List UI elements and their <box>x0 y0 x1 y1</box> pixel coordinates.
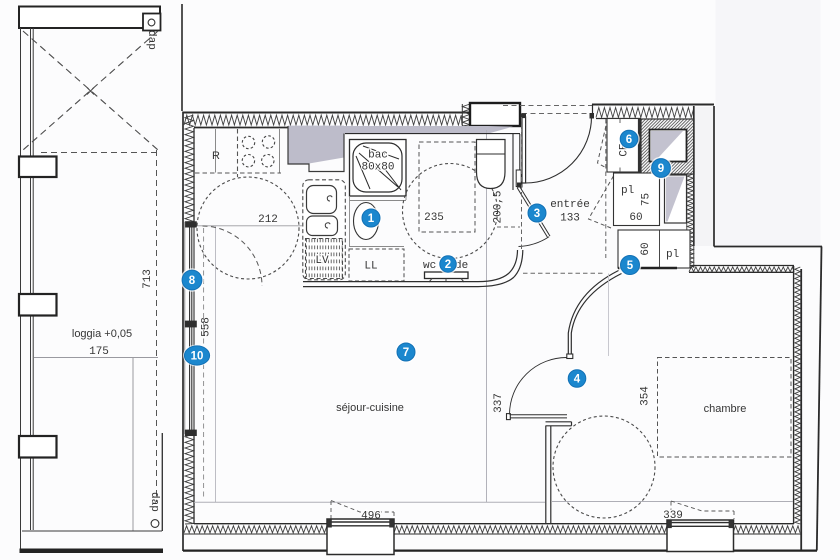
svg-text:1: 1 <box>368 213 375 225</box>
svg-text:séjour-cuisine: séjour-cuisine <box>336 402 404 414</box>
svg-text:pl: pl <box>666 249 679 261</box>
svg-text:2: 2 <box>445 259 451 271</box>
svg-text:212: 212 <box>258 214 278 226</box>
svg-text:10: 10 <box>191 351 204 363</box>
svg-text:9: 9 <box>658 163 664 175</box>
svg-text:LL: LL <box>364 261 377 273</box>
svg-text:133: 133 <box>560 213 580 225</box>
svg-text:wc: wc <box>423 260 436 272</box>
svg-text:LV: LV <box>315 255 329 267</box>
svg-text:337: 337 <box>493 393 505 413</box>
svg-text:200,5: 200,5 <box>493 190 505 223</box>
svg-text:175: 175 <box>89 346 109 358</box>
svg-text:pl: pl <box>621 185 634 197</box>
svg-text:7: 7 <box>403 347 409 359</box>
svg-text:235: 235 <box>424 212 444 224</box>
svg-text:4: 4 <box>574 374 581 386</box>
svg-text:6: 6 <box>626 134 632 146</box>
svg-text:R: R <box>212 150 220 162</box>
svg-text:bac: bac <box>368 150 388 162</box>
svg-text:713: 713 <box>142 269 154 289</box>
svg-text:60: 60 <box>629 212 642 224</box>
svg-text:80x80: 80x80 <box>361 162 394 174</box>
svg-text:5: 5 <box>627 260 634 272</box>
svg-text:60: 60 <box>640 242 652 255</box>
svg-text:75: 75 <box>641 193 653 206</box>
svg-text:558: 558 <box>201 317 213 337</box>
svg-text:dap: dap <box>148 492 160 512</box>
svg-text:loggia +0,05: loggia +0,05 <box>72 328 132 340</box>
svg-text:3: 3 <box>534 208 540 220</box>
svg-text:354: 354 <box>640 386 652 406</box>
svg-text:chambre: chambre <box>704 403 747 415</box>
svg-text:entrée: entrée <box>550 199 590 211</box>
svg-text:8: 8 <box>189 275 196 287</box>
